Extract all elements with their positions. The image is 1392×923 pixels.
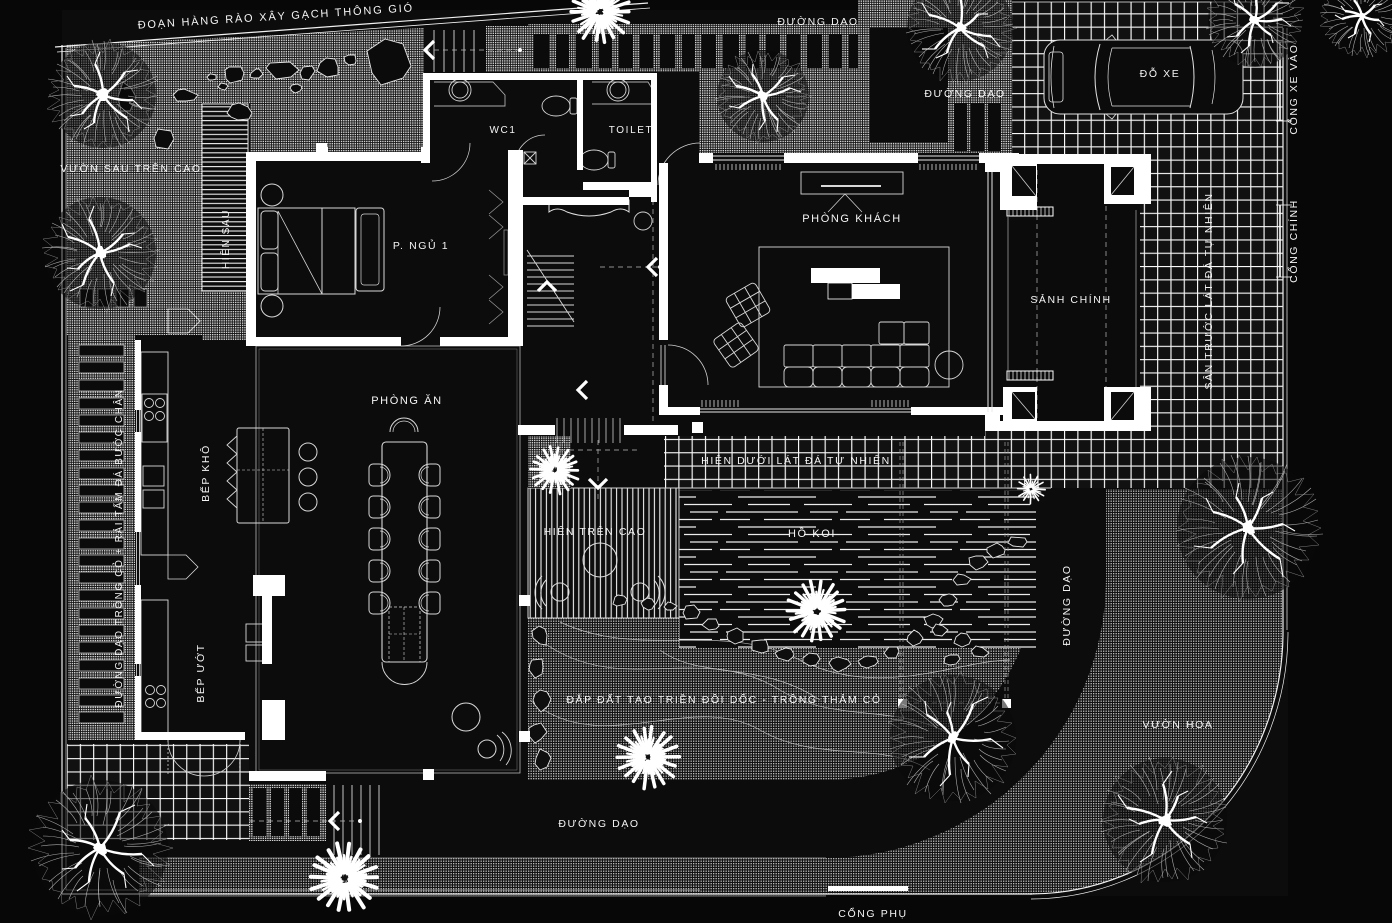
svg-text:BẾP ƯỚT: BẾP ƯỚT [194, 643, 207, 702]
svg-text:CỔNG XE VÀO: CỔNG XE VÀO [1287, 43, 1300, 134]
svg-text:ĐỖ XE: ĐỖ XE [1140, 67, 1181, 80]
svg-text:TOILET: TOILET [609, 125, 653, 136]
svg-text:WC1: WC1 [489, 125, 516, 136]
svg-text:HIÊN DƯỚI LÁT ĐÁ TỰ NHIÊN: HIÊN DƯỚI LÁT ĐÁ TỰ NHIÊN [701, 454, 891, 467]
svg-text:ĐƯỜNG DẠO TRỒNG CỎ + RẢI TẤM Đ: ĐƯỜNG DẠO TRỒNG CỎ + RẢI TẤM ĐÁ BƯỚC CHÂ… [112, 388, 125, 707]
svg-text:BẾP KHÔ: BẾP KHÔ [199, 444, 212, 502]
svg-text:HỒ KOI: HỒ KOI [788, 527, 836, 540]
svg-text:CỔNG PHỤ: CỔNG PHỤ [838, 907, 907, 920]
svg-text:ĐƯỜNG DẠO: ĐƯỜNG DẠO [558, 817, 639, 830]
svg-text:P. NGỦ 1: P. NGỦ 1 [393, 239, 449, 252]
svg-text:HIÊN TRÊN CAO: HIÊN TRÊN CAO [544, 525, 647, 538]
svg-text:ĐẮP ĐẤT TẠO TRIỀN ĐỒI DỐC - TR: ĐẮP ĐẤT TẠO TRIỀN ĐỒI DỐC - TRỒNG THẢM C… [566, 692, 881, 706]
svg-text:PHÒNG ĂN: PHÒNG ĂN [371, 394, 442, 407]
svg-text:SÂN TRƯỚC LÁT ĐÁ TỰ NHIÊN: SÂN TRƯỚC LÁT ĐÁ TỰ NHIÊN [1202, 192, 1215, 389]
svg-text:CỔNG CHÍNH: CỔNG CHÍNH [1287, 199, 1300, 283]
svg-text:HIÊN SAU: HIÊN SAU [219, 209, 232, 269]
svg-text:ĐƯỜNG DẠO: ĐƯỜNG DẠO [1060, 564, 1073, 645]
svg-text:PHÒNG KHÁCH: PHÒNG KHÁCH [802, 212, 902, 225]
svg-text:ĐƯỜNG DẠO: ĐƯỜNG DẠO [777, 15, 858, 28]
svg-text:VƯỜN HOA: VƯỜN HOA [1142, 718, 1213, 731]
svg-text:ĐƯỜNG DẠO: ĐƯỜNG DẠO [924, 87, 1005, 100]
svg-text:SẢNH CHÍNH: SẢNH CHÍNH [1030, 293, 1111, 306]
svg-text:VƯỜN SAU TRÊN CAO: VƯỜN SAU TRÊN CAO [60, 162, 201, 175]
